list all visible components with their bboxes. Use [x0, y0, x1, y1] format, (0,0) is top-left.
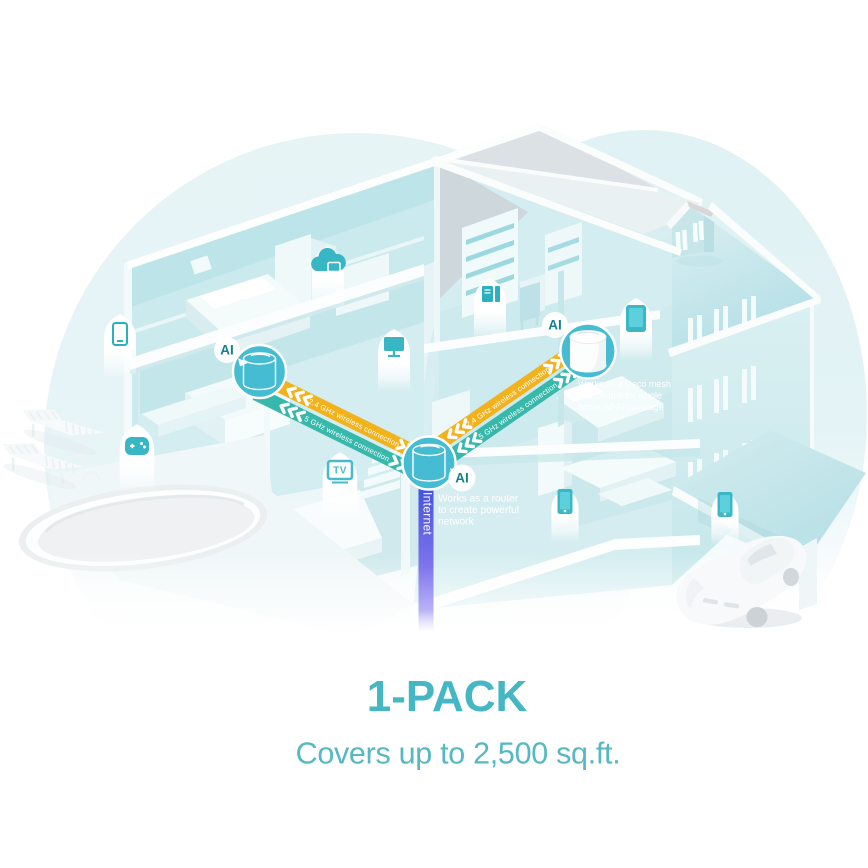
svg-text:to create powerful: to create powerful [438, 505, 519, 516]
svg-text:Works as a router: Works as a router [438, 494, 519, 505]
svg-text:AI: AI [548, 318, 562, 333]
svg-text:add-on unit for whole: add-on unit for whole [578, 391, 662, 401]
svg-text:Works as a Deco mesh: Works as a Deco mesh [578, 379, 671, 389]
svg-text:home Wi-Fi coverage: home Wi-Fi coverage [578, 402, 664, 412]
svg-text:Internet: Internet [421, 492, 435, 535]
svg-text:network: network [438, 517, 475, 528]
svg-text:1-PACK: 1-PACK [367, 672, 528, 721]
svg-text:TV: TV [333, 466, 347, 477]
svg-text:AI: AI [220, 343, 234, 358]
svg-text:Covers up to 2,500 sq.ft.: Covers up to 2,500 sq.ft. [296, 737, 621, 771]
svg-text:AI: AI [455, 471, 469, 486]
